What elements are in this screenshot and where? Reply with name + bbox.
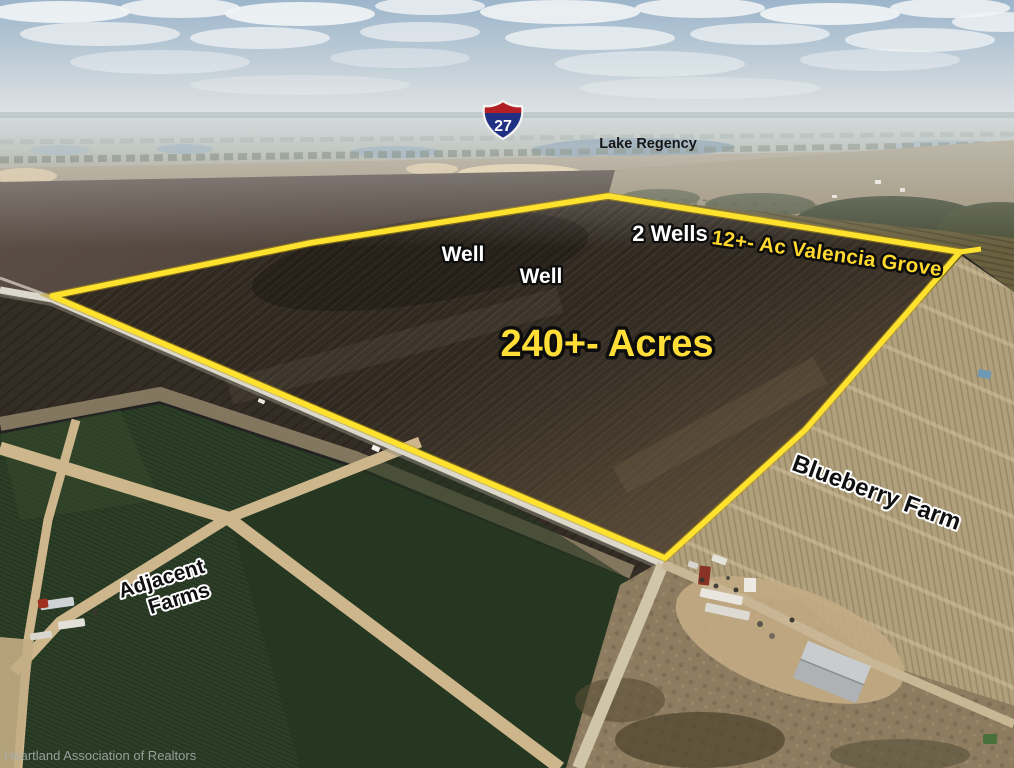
well-label-a: Well <box>442 243 485 266</box>
aerial-listing-photo: 27 Lake Regency Well Well 2 Wells 12+- A… <box>0 0 1014 768</box>
well-label-b: Well <box>520 265 563 288</box>
two-wells-label: 2 Wells <box>632 221 707 246</box>
route-number-label: 27 <box>494 118 512 135</box>
watermark: Heartland Association of Realtors <box>4 748 197 763</box>
acreage-label: 240+- Acres <box>500 323 713 365</box>
lake-label: Lake Regency <box>599 136 697 152</box>
scene: 27 Lake Regency Well Well 2 Wells 12+- A… <box>0 0 1014 768</box>
